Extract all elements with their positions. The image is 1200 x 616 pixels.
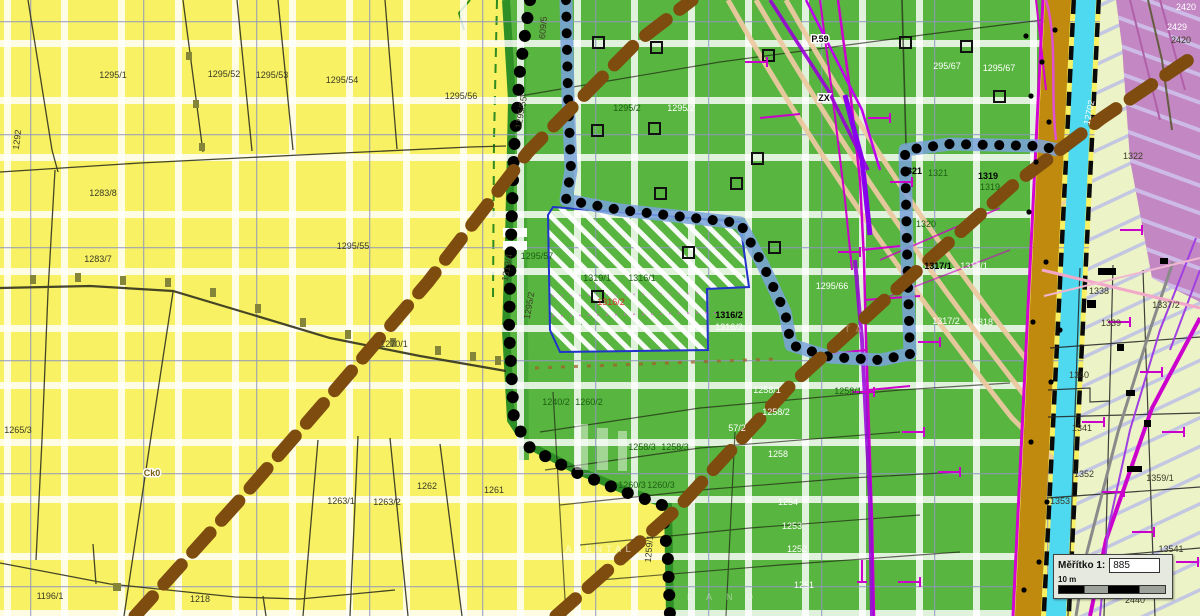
map-label: 1295/56 xyxy=(445,91,478,101)
map-label: 1196/1 xyxy=(37,591,64,601)
map-label: 1316/2 xyxy=(715,322,743,332)
map-label: 1258/3 xyxy=(661,442,689,452)
map-label: 1340 xyxy=(1069,370,1089,380)
map-label: 1317/1 xyxy=(924,261,952,271)
map-label: 1258/1 xyxy=(753,385,781,395)
map-label: 1319 xyxy=(978,171,998,181)
map-label: 1295/67 xyxy=(983,63,1016,73)
scale-bar-label: 10 m xyxy=(1058,575,1168,584)
map-label: 1295/52 xyxy=(208,69,241,79)
map-label: 1261 xyxy=(484,485,504,495)
map-label: 1262 xyxy=(417,481,437,491)
zoning-map: 12921295/11295/521295/531295/541295/5612… xyxy=(0,0,1200,616)
map-label: 1251 xyxy=(794,580,814,590)
map-label: 57/2 xyxy=(728,423,746,433)
map-label: 1265/3 xyxy=(4,425,32,435)
map-label: Ck0 xyxy=(144,468,161,478)
map-label: 1319 xyxy=(980,182,1000,192)
map-label: 1258/2 xyxy=(762,407,790,417)
map-label: 1263/1 xyxy=(327,496,355,506)
map-label: 1295/2 xyxy=(667,103,695,113)
map-label: 1295/54 xyxy=(326,75,359,85)
map-label: 1321 xyxy=(902,166,922,176)
map-label: 2420 xyxy=(1176,2,1196,12)
map-label: 1321 xyxy=(928,168,948,178)
map-label: 2420 xyxy=(1171,35,1191,45)
scale-box: Měřítko 1: 885 10 m xyxy=(1053,554,1173,599)
map-label: 1260/2 xyxy=(575,397,603,407)
map-label: 1295/2 xyxy=(613,103,641,113)
map-label: 1316/2 xyxy=(597,297,625,307)
map-label: 1338 xyxy=(1089,286,1109,296)
map-label: 1260/3 xyxy=(647,480,675,490)
scale-bar xyxy=(1058,585,1166,594)
map-label: LAND xyxy=(687,592,767,602)
scale-label: Měřítko 1: xyxy=(1058,560,1105,571)
map-label: 1258/3 xyxy=(628,442,656,452)
watermark-fragment-bars xyxy=(575,424,627,471)
map-label: 1295/66 xyxy=(816,281,849,291)
map-label: ASENTAL xyxy=(565,544,635,554)
map-label: 1317/2 xyxy=(932,316,960,326)
map-label: 1339 xyxy=(1101,318,1121,328)
scale-input[interactable]: 885 xyxy=(1109,558,1160,573)
map-label: 1270/1 xyxy=(380,339,408,349)
map-label: 1337/2 xyxy=(1152,300,1180,310)
map-canvas[interactable]: 12921295/11295/521295/531295/541295/5612… xyxy=(0,0,1200,616)
map-label: 1295/55 xyxy=(337,241,370,251)
map-label: 1295/1 xyxy=(99,70,127,80)
map-label: 1283/7 xyxy=(84,254,112,264)
map-label: 1359/1 xyxy=(1146,473,1174,483)
map-label: TAL xyxy=(845,324,880,334)
map-label: 1341 xyxy=(1072,423,1092,433)
map-label: 1320 xyxy=(916,219,936,229)
map-label: 1316/1 xyxy=(628,273,656,283)
map-label: 609/5 xyxy=(537,16,549,39)
map-label: 1295/53 xyxy=(256,70,289,80)
map-label: 1260/3 xyxy=(618,480,646,490)
map-label: 1322 xyxy=(1123,151,1143,161)
map-label: 1353 xyxy=(1050,496,1070,506)
map-label: ZX xyxy=(818,93,830,103)
map-label: 1258/1 xyxy=(834,386,862,396)
map-label: 13541 xyxy=(1158,544,1183,554)
map-label: 1252 xyxy=(787,544,807,554)
map-label: 1218 xyxy=(190,594,210,604)
map-label: 1317/1 xyxy=(960,261,988,271)
map-label: 1319/1 xyxy=(583,273,611,283)
map-label: 1316/2 xyxy=(715,310,743,320)
map-label: 1352 xyxy=(1074,469,1094,479)
map-label: 295/67 xyxy=(933,61,961,71)
map-label: 1253 xyxy=(782,521,802,531)
map-label: 1254 xyxy=(778,497,798,507)
map-label: 1318 xyxy=(973,317,993,327)
map-label: 2429 xyxy=(1167,22,1187,32)
map-label: 1283/8 xyxy=(89,188,117,198)
map-label: P.59 xyxy=(811,34,828,44)
map-label: 1263/2 xyxy=(373,497,401,507)
map-label: 1240/2 xyxy=(542,397,570,407)
map-label: 1295/57 xyxy=(521,251,554,261)
map-label: 1258 xyxy=(768,449,788,459)
